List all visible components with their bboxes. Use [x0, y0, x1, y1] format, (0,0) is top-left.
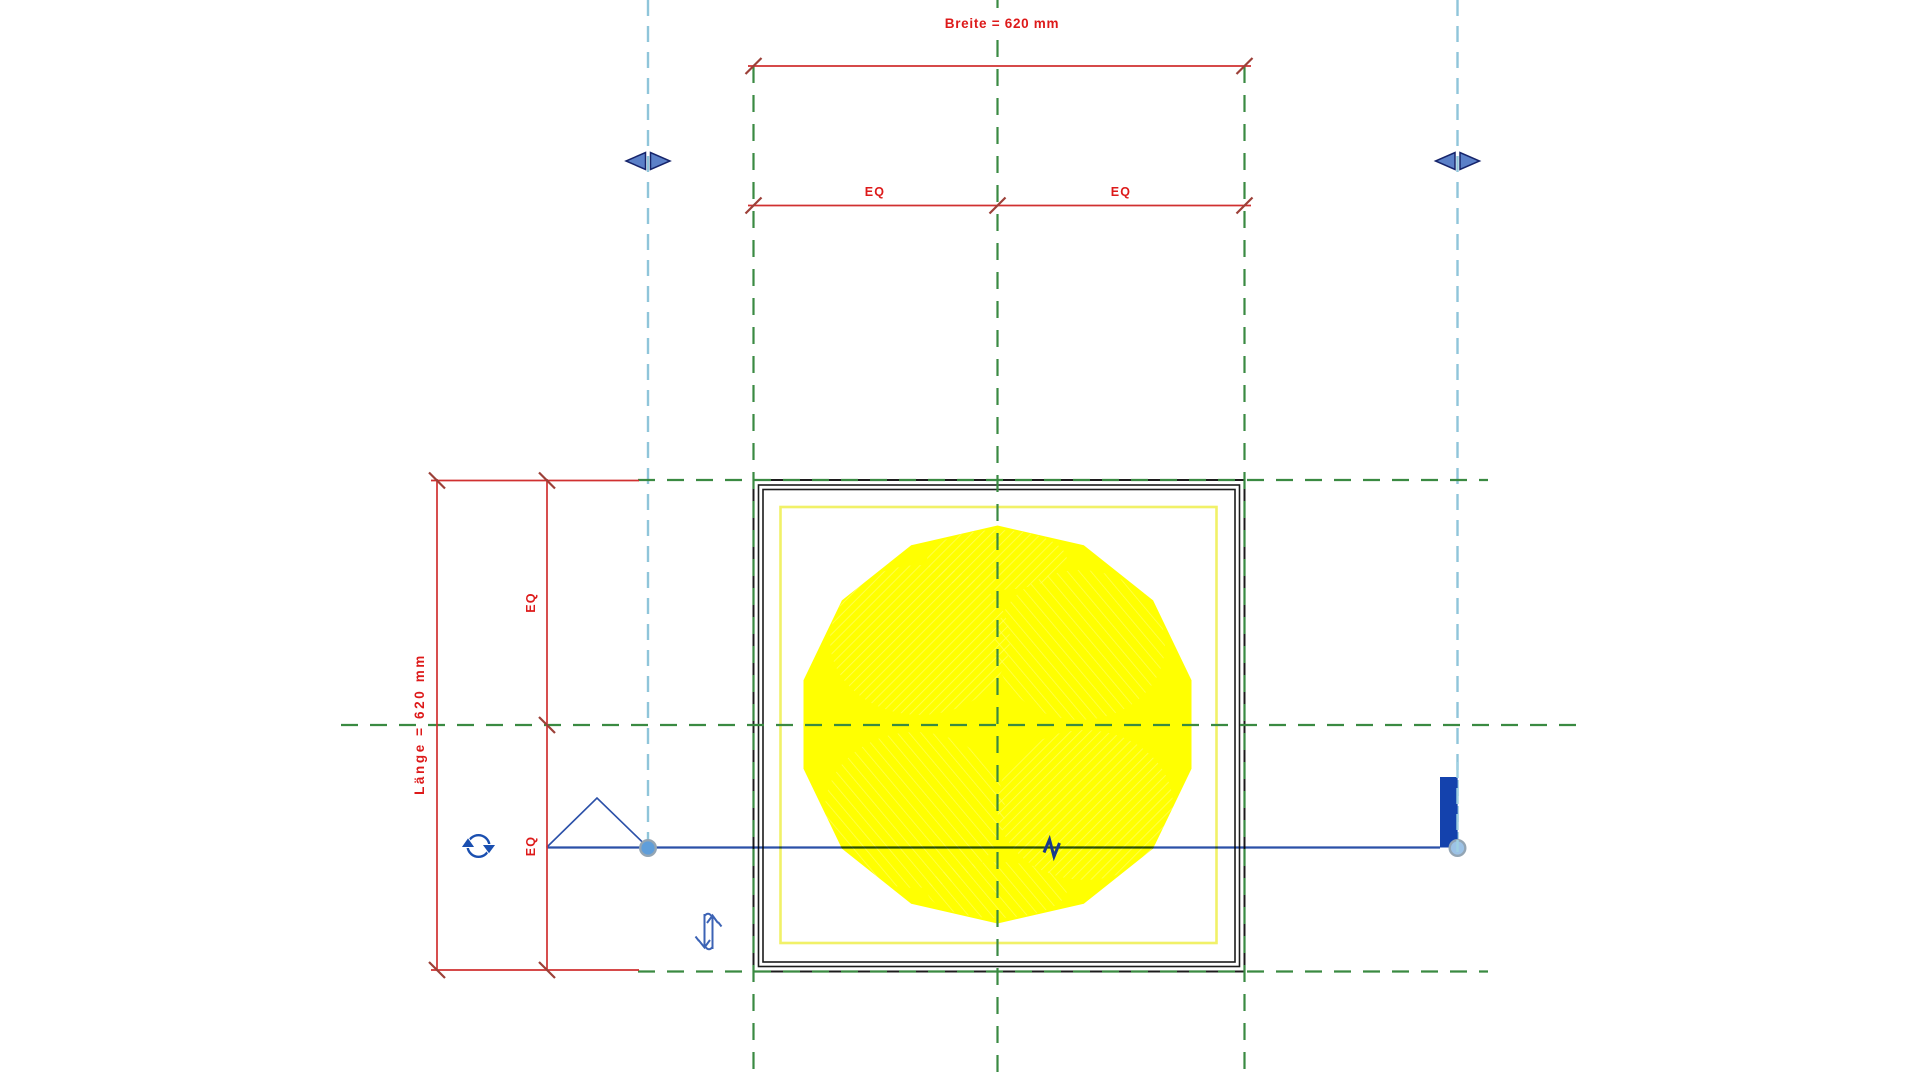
svg-text:Länge = 620 mm: Länge = 620 mm — [412, 653, 427, 795]
svg-text:EQ: EQ — [1111, 185, 1131, 199]
svg-text:EQ: EQ — [524, 836, 538, 856]
svg-text:EQ: EQ — [524, 592, 538, 612]
svg-text:EQ: EQ — [865, 185, 885, 199]
svg-text:Breite = 620 mm: Breite = 620 mm — [945, 16, 1059, 31]
